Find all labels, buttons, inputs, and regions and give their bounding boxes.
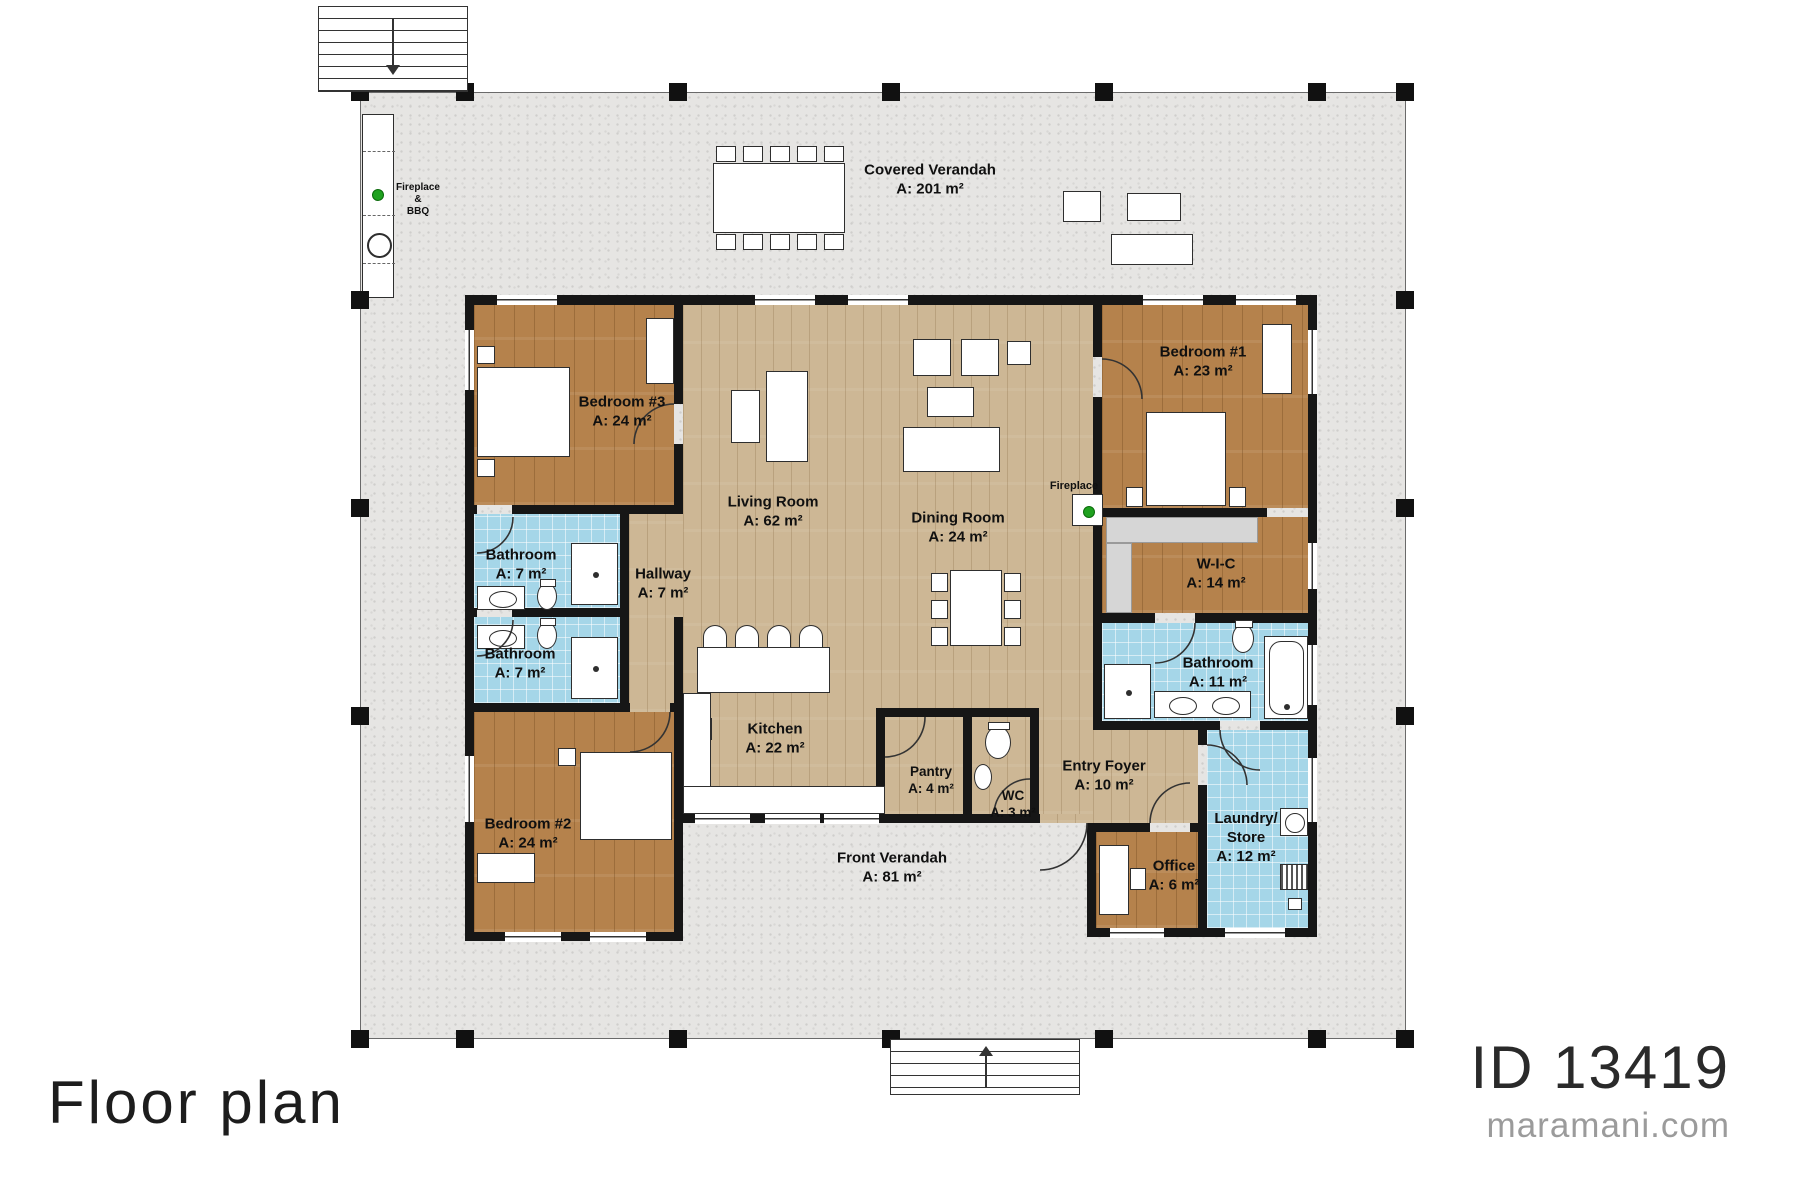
- room-area: A: 24 m²: [911, 528, 1004, 547]
- deck-pillar: [1308, 1030, 1326, 1048]
- door-arc: [1150, 783, 1190, 823]
- deck-pillar: [456, 1030, 474, 1048]
- room-area: A: 10 m²: [1062, 776, 1145, 795]
- label-office: Office A: 6 m²: [1149, 857, 1200, 895]
- label-front-verandah: Front Verandah A: 81 m²: [837, 849, 947, 887]
- room-name: Dining Room: [911, 509, 1004, 528]
- room-name: Laundry/ Store: [1200, 810, 1292, 848]
- deck-pillar: [669, 83, 687, 101]
- deck-pillar: [1396, 83, 1414, 101]
- label-laundry-store: Laundry/ Store A: 12 m²: [1200, 810, 1292, 866]
- label-bedroom-3: Bedroom #3 A: 24 m²: [579, 393, 666, 431]
- label-wic: W-I-C A: 14 m²: [1186, 555, 1245, 593]
- room-name: Living Room: [728, 493, 819, 512]
- room-area: A: 7 m²: [485, 664, 556, 683]
- deck-pillar: [1396, 1030, 1414, 1048]
- stairs-arrow-up-icon: [979, 1046, 993, 1056]
- label-line: BBQ: [396, 206, 440, 218]
- room-area: A: 3 m²: [990, 805, 1036, 822]
- room-name: Entry Foyer: [1062, 757, 1145, 776]
- room-area: A: 6 m²: [1149, 876, 1200, 895]
- label-line: &: [396, 194, 440, 206]
- room-name: Covered Verandah: [864, 161, 996, 180]
- room-name: Bedroom #3: [579, 393, 666, 412]
- room-name: Front Verandah: [837, 849, 947, 868]
- room-name: Bedroom #1: [1160, 343, 1247, 362]
- room-area: A: 7 m²: [486, 565, 557, 584]
- deck-pillar: [1396, 499, 1414, 517]
- deck-pillar: [351, 707, 369, 725]
- room-name: Kitchen: [745, 720, 804, 739]
- room-area: A: 24 m²: [485, 834, 572, 853]
- deck-pillar: [1396, 707, 1414, 725]
- door-arc: [1102, 359, 1142, 399]
- label-pantry: Pantry A: 4 m²: [908, 764, 954, 798]
- room-name: Bathroom: [486, 546, 557, 565]
- room-area: A: 14 m²: [1186, 574, 1245, 593]
- stairs-arrow-line: [985, 1054, 987, 1088]
- deck-pillar: [1308, 83, 1326, 101]
- room-name: W-I-C: [1186, 555, 1245, 574]
- room-area: A: 22 m²: [745, 739, 804, 758]
- deck-pillar: [669, 1030, 687, 1048]
- website-label: maramani.com: [1487, 1106, 1730, 1146]
- label-kitchen: Kitchen A: 22 m²: [745, 720, 804, 758]
- label-bathroom-lower: Bathroom A: 7 m²: [485, 645, 556, 683]
- label-entry-foyer: Entry Foyer A: 10 m²: [1062, 757, 1145, 795]
- room-name: Bathroom: [1183, 654, 1254, 673]
- deck-pillar: [351, 499, 369, 517]
- room-area: A: 12 m²: [1200, 847, 1292, 866]
- room-name: Office: [1149, 857, 1200, 876]
- label-bathroom-main: Bathroom A: 11 m²: [1183, 654, 1254, 692]
- room-area: A: 24 m²: [579, 412, 666, 431]
- door-arc: [1040, 823, 1087, 870]
- room-area: A: 11 m²: [1183, 673, 1254, 692]
- room-name: Bathroom: [485, 645, 556, 664]
- stairs-arrow-down-icon: [386, 65, 400, 75]
- deck-pillar: [882, 83, 900, 101]
- floor-plan-canvas: Covered Verandah A: 201 m² Front Veranda…: [0, 0, 1800, 1200]
- label-bathroom-upper: Bathroom A: 7 m²: [486, 546, 557, 584]
- room-area: A: 23 m²: [1160, 362, 1247, 381]
- plan-title: Floor plan: [48, 1068, 345, 1137]
- room-area: A: 4 m²: [908, 781, 954, 798]
- label-line: Fireplace: [396, 182, 440, 194]
- door-arc: [1207, 745, 1247, 785]
- deck-pillar: [1095, 1030, 1113, 1048]
- label-living-room: Living Room A: 62 m²: [728, 493, 819, 531]
- label-fireplace: Fireplace: [1050, 480, 1098, 492]
- deck-pillar: [1095, 83, 1113, 101]
- plan-id: ID 13419: [1470, 1033, 1730, 1102]
- label-bedroom-2: Bedroom #2 A: 24 m²: [485, 815, 572, 853]
- door-arc: [885, 717, 925, 757]
- label-dining-room: Dining Room A: 24 m²: [911, 509, 1004, 547]
- room-area: A: 201 m²: [864, 180, 996, 199]
- label-bedroom-1: Bedroom #1 A: 23 m²: [1160, 343, 1247, 381]
- deck-pillar: [1396, 291, 1414, 309]
- room-name: Bedroom #2: [485, 815, 572, 834]
- label-hallway: Hallway A: 7 m²: [635, 565, 691, 603]
- label-fireplace-bbq: Fireplace & BBQ: [396, 182, 440, 218]
- room-area: A: 62 m²: [728, 512, 819, 531]
- stairs-arrow-line: [392, 19, 394, 67]
- room-area: A: 81 m²: [837, 868, 947, 887]
- label-wc: WC A: 3 m²: [990, 788, 1036, 822]
- door-arc: [630, 712, 670, 752]
- stairs-top: [318, 6, 468, 92]
- deck-pillar: [351, 1030, 369, 1048]
- label-covered-verandah: Covered Verandah A: 201 m²: [864, 161, 996, 199]
- room-area: A: 7 m²: [635, 584, 691, 603]
- room-name: WC: [990, 788, 1036, 805]
- stairs-bottom: [890, 1039, 1080, 1095]
- room-name: Hallway: [635, 565, 691, 584]
- deck-pillar: [351, 291, 369, 309]
- room-name: Pantry: [908, 764, 954, 781]
